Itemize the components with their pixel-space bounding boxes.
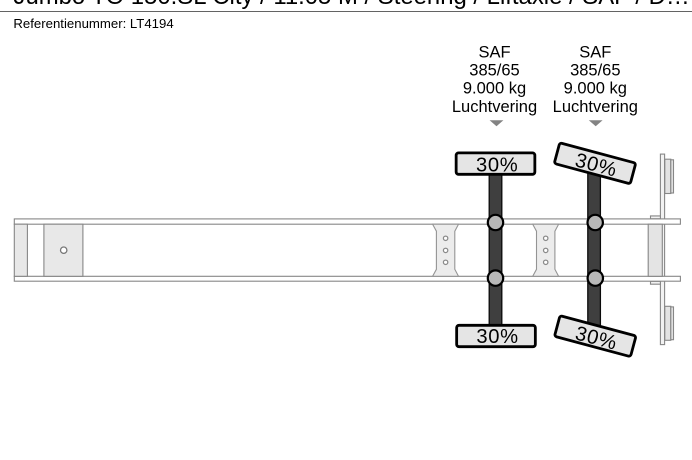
svg-text:30%: 30% [573,323,620,355]
svg-text:SAF: SAF [478,44,510,62]
svg-text:385/65: 385/65 [469,62,519,80]
svg-text:30%: 30% [476,155,519,177]
svg-text:9.000 kg: 9.000 kg [463,80,526,98]
svg-text:SAF: SAF [579,44,611,62]
svg-text:30%: 30% [476,326,519,348]
svg-text:9.000 kg: 9.000 kg [564,80,627,98]
svg-text:Luchtvering: Luchtvering [553,98,638,116]
svg-text:30%: 30% [573,149,620,181]
svg-text:Luchtvering: Luchtvering [452,98,537,116]
svg-text:385/65: 385/65 [570,62,620,80]
